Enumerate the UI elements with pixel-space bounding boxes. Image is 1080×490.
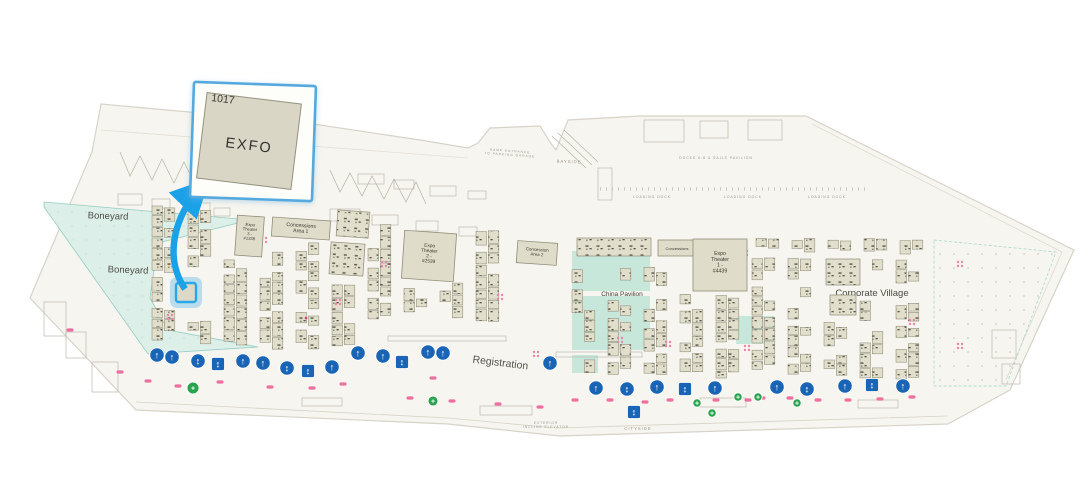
- concession-area-2-block[interactable]: ConcessionArea 2: [516, 241, 557, 266]
- booth: [896, 349, 907, 362]
- booth: [908, 272, 919, 281]
- booth: [716, 296, 727, 310]
- booth: [764, 318, 775, 328]
- cityside-label: CITYSIDE: [624, 426, 651, 431]
- escalator-up-icon-glyph: ↑: [170, 352, 175, 363]
- exhibit-marker: [495, 402, 502, 405]
- exhibit-marker: [309, 386, 316, 389]
- poster-marker: [665, 345, 667, 347]
- escalator-up-icon-glyph: ↑: [594, 383, 599, 394]
- booth: [836, 327, 847, 338]
- booth: [380, 249, 391, 261]
- exhibit-marker: [845, 398, 852, 401]
- booth: [656, 354, 667, 363]
- booth: [792, 241, 803, 249]
- booth: [380, 225, 391, 236]
- elevator-icon: ↕: [628, 406, 641, 419]
- elevator-icon: ↕: [212, 358, 225, 371]
- booth: [872, 332, 883, 344]
- escalator-up-icon-glyph: ↑: [155, 350, 160, 361]
- exhibit-marker: [117, 370, 124, 373]
- booth: [260, 330, 271, 342]
- booth: [692, 310, 703, 323]
- booth: [908, 344, 919, 352]
- booth: [152, 308, 163, 318]
- booth-callout[interactable]: 1017 EXFO: [190, 82, 316, 201]
- poster-marker: [381, 265, 383, 267]
- poster-marker: [385, 261, 387, 263]
- exhibit-marker: [787, 396, 794, 399]
- booth: [864, 239, 875, 252]
- booth: [728, 350, 739, 359]
- booth: [260, 288, 271, 301]
- booth: [728, 359, 739, 372]
- escalator-up-icon-glyph: ↑: [381, 351, 386, 362]
- loading-dock-label-3: LOADING DOCK: [808, 195, 846, 199]
- escalator-up-icon-glyph: ↑: [548, 358, 553, 369]
- booth: [752, 316, 763, 328]
- booth: [344, 297, 355, 308]
- elevator-icon: ↕: [866, 379, 879, 392]
- poster-marker: [961, 343, 963, 345]
- booth: [620, 357, 631, 368]
- accessibility-icon: +: [708, 409, 716, 418]
- escalator-up-icon: ↑: [256, 356, 270, 370]
- accessibility-icon-glyph: +: [431, 399, 435, 406]
- expo-theater-1-block[interactable]: ExpoTheater1 -#4439: [693, 239, 747, 291]
- booth: [308, 271, 319, 280]
- booth: [272, 282, 283, 292]
- booth: [308, 316, 319, 325]
- booth: [572, 302, 583, 313]
- booth: [224, 285, 235, 293]
- booth: [416, 299, 427, 307]
- booth: [756, 238, 767, 246]
- booth: [152, 319, 163, 327]
- escalator-up-icon: ↑: [770, 380, 784, 394]
- booth: [860, 369, 871, 378]
- booth: [826, 259, 860, 285]
- booth: [764, 355, 775, 365]
- booth: [824, 360, 835, 369]
- booth: [260, 301, 271, 310]
- concessions-block[interactable]: Concessions: [658, 240, 696, 256]
- elevator-icon-glyph: ↕: [870, 380, 875, 391]
- booth: [188, 322, 199, 330]
- booth: [728, 298, 739, 308]
- booth: [476, 309, 487, 321]
- booth: [380, 237, 391, 249]
- booth: [728, 331, 739, 340]
- booth: [656, 273, 667, 286]
- concessions-area-1-block[interactable]: ConcessionsArea 1: [271, 217, 330, 240]
- booth: [488, 231, 499, 244]
- booth: [908, 366, 919, 377]
- booth: [680, 311, 691, 323]
- expo-theater-3-block[interactable]: ExpoTheater3 -#1339: [235, 215, 265, 257]
- concessions-label: Concessions: [666, 246, 689, 251]
- poster-marker: [913, 319, 915, 321]
- booth: [620, 344, 631, 356]
- booth: [788, 259, 799, 269]
- booth: [752, 287, 763, 296]
- booth: [476, 265, 487, 276]
- booth: [404, 288, 415, 300]
- booth: [152, 215, 163, 226]
- poster-marker: [913, 323, 915, 325]
- floorplan-map[interactable]: ↑↑↕↕↑↑↕↕↑↑↑↕↑↑↑↑↕↑↕↑↑↕↑↕↑↕+++++++ Boneya…: [0, 0, 1080, 490]
- accessibility-icon-glyph: +: [756, 395, 760, 402]
- booth: [236, 269, 247, 282]
- booth: [488, 300, 499, 308]
- escalator-up-icon: ↑: [543, 356, 557, 370]
- booth: [584, 311, 595, 320]
- poster-marker: [497, 298, 499, 300]
- exhibit-marker: [667, 398, 674, 401]
- poster-marker: [265, 237, 267, 239]
- booth: [620, 269, 631, 281]
- booth: [260, 318, 271, 329]
- accessibility-icon: +: [754, 393, 762, 402]
- accessibility-icon-glyph: +: [795, 401, 799, 408]
- booth: [272, 273, 283, 281]
- booth: [368, 268, 379, 279]
- poster-marker: [501, 298, 503, 300]
- booth: [752, 270, 763, 280]
- poster-marker: [957, 261, 959, 263]
- china-pavilion-label: China Pavilion: [601, 291, 643, 298]
- booth: [308, 262, 319, 270]
- booth: [752, 350, 763, 360]
- poster-marker: [497, 294, 499, 296]
- escalator-up-icon-glyph: ↑: [330, 362, 335, 373]
- escalator-up-icon-glyph: ↑: [241, 356, 246, 367]
- booth: [200, 245, 211, 257]
- booth: [584, 360, 595, 373]
- escalator-down-icon-glyph: ↕: [805, 384, 810, 395]
- booth: [200, 321, 211, 333]
- poster-marker: [957, 265, 959, 267]
- booth: [608, 343, 619, 356]
- exhibit-marker: [877, 397, 884, 400]
- exhibit-marker: [909, 395, 916, 398]
- booth: [224, 306, 235, 316]
- booth: [644, 363, 655, 373]
- booth: [788, 270, 799, 279]
- booth: [692, 336, 703, 346]
- escalator-up-icon-glyph: ↑: [261, 358, 266, 369]
- exhibit-marker: [145, 379, 152, 382]
- escalator-down-icon: ↕: [800, 382, 814, 396]
- booth: [200, 230, 211, 244]
- poster-marker: [167, 318, 169, 320]
- exhibit-marker: [572, 398, 579, 401]
- poster-marker: [748, 349, 750, 351]
- booth: [860, 343, 871, 353]
- escalator-down-icon: ↕: [280, 361, 294, 375]
- booth: [476, 300, 487, 308]
- poster-marker: [744, 345, 746, 347]
- booth: [896, 306, 907, 320]
- elevator-icon: ↕: [302, 365, 315, 378]
- boneyard-lower-label: Boneyard: [108, 264, 149, 276]
- booth: [872, 345, 883, 354]
- booth: [380, 277, 391, 286]
- booth: [896, 270, 907, 284]
- escalator-up-icon-glyph: ↑: [901, 381, 906, 392]
- exhibit-marker: [175, 384, 182, 387]
- expo-floorplan-viewer: ↑↑↕↕↑↑↕↕↑↑↑↕↑↑↑↑↕↑↕↑↑↕↑↕↑↕+++++++ Boneya…: [0, 0, 1080, 490]
- escalator-up-icon: ↑: [589, 381, 603, 395]
- escalator-up-icon: ↑: [421, 345, 435, 359]
- booth: [200, 211, 211, 223]
- booth: [188, 211, 199, 224]
- booth: [912, 240, 923, 249]
- booth: [752, 259, 763, 269]
- booth: [860, 354, 871, 368]
- booth: [188, 256, 199, 267]
- point-marker: [305, 317, 308, 320]
- booth: [788, 336, 799, 346]
- poster-marker: [621, 337, 623, 339]
- booth: [896, 326, 907, 337]
- booth: [308, 288, 319, 299]
- booth: [872, 368, 883, 378]
- booth: [764, 258, 775, 270]
- booth: [692, 354, 703, 363]
- booth: [236, 332, 247, 345]
- accessibility-icon: +: [187, 382, 199, 394]
- escalator-down-icon-glyph: ↕: [196, 356, 201, 367]
- elevator-icon-glyph: ↕: [216, 359, 221, 370]
- booth: [824, 322, 835, 334]
- poster-marker: [335, 303, 337, 305]
- booth: [272, 252, 283, 265]
- poster-marker: [381, 261, 383, 263]
- booth: [584, 333, 595, 342]
- booth: [800, 288, 811, 297]
- booth: [788, 326, 799, 334]
- poster-marker: [339, 299, 341, 301]
- booth: [224, 275, 235, 283]
- booth: [308, 300, 319, 309]
- escalator-up-icon: ↑: [436, 346, 450, 360]
- booth: [656, 300, 667, 311]
- escalator-up-icon-glyph: ↑: [426, 347, 431, 358]
- booth: [488, 254, 499, 263]
- building-outline: [30, 104, 1074, 436]
- booth: [236, 283, 247, 294]
- poster-marker: [335, 299, 337, 301]
- poster-marker: [339, 303, 341, 305]
- escalator-down-icon: ↕: [191, 354, 205, 368]
- exhibit-marker: [713, 398, 720, 401]
- exhibit-marker: [607, 398, 614, 401]
- poster-marker: [617, 337, 619, 339]
- poster-marker: [171, 318, 173, 320]
- poster-marker: [665, 341, 667, 343]
- booth: [656, 364, 667, 374]
- booth: [608, 332, 619, 342]
- loading-dock-label-1: LOADING DOCK: [633, 195, 671, 199]
- booth: [188, 238, 199, 249]
- booth: [680, 343, 691, 352]
- booth: [764, 329, 775, 341]
- booth: [680, 359, 691, 372]
- booth: [380, 303, 391, 315]
- loading-dock-label-2: LOADING DOCK: [724, 195, 762, 199]
- booth: [476, 232, 487, 246]
- bayside-label: BAYSIDE: [557, 159, 582, 165]
- booth: [152, 228, 163, 237]
- escalator-up-icon-glyph: ↑: [356, 348, 361, 359]
- booth: [800, 363, 811, 371]
- booth: [836, 365, 847, 376]
- booth: [488, 287, 499, 299]
- booth: [824, 336, 835, 346]
- poster-marker: [501, 294, 503, 296]
- poster-marker: [537, 351, 539, 353]
- booth: [896, 260, 907, 268]
- escalator-up-icon-glyph: ↑: [713, 383, 718, 394]
- highlighted-booth[interactable]: [173, 280, 199, 305]
- booth: [488, 274, 499, 286]
- booth: [296, 330, 307, 342]
- booth: [716, 359, 727, 370]
- poster-marker: [909, 319, 911, 321]
- escalator-up-icon: ↑: [150, 348, 164, 362]
- booth: [344, 285, 355, 295]
- escalator-up-icon-glyph: ↑: [775, 382, 780, 393]
- booth: [476, 252, 487, 264]
- escalator-up-icon: ↑: [236, 354, 250, 368]
- booth: [296, 251, 307, 260]
- booth: [908, 303, 919, 311]
- booth: [332, 285, 343, 298]
- booth: [440, 291, 451, 302]
- booth: [768, 239, 779, 248]
- booth: [272, 337, 283, 349]
- booth: [840, 241, 851, 250]
- escalator-down-icon-glyph: ↕: [285, 363, 290, 374]
- booth: [368, 280, 379, 291]
- booth: [692, 364, 703, 372]
- elevator-icon: ↕: [396, 356, 409, 369]
- booth: [860, 312, 871, 321]
- booth: [908, 353, 919, 366]
- booth: [764, 341, 775, 354]
- exhibit-marker: [217, 380, 224, 383]
- booth: [344, 324, 355, 335]
- escalator-up-icon: ↑: [165, 350, 179, 364]
- booth: [800, 354, 811, 362]
- exhibit-marker: [430, 376, 437, 379]
- booth: [804, 238, 815, 252]
- poster-marker: [669, 345, 671, 347]
- booth: [572, 290, 583, 301]
- poster-marker: [961, 261, 963, 263]
- booth: [308, 243, 319, 255]
- booth: [368, 311, 379, 319]
- poster-marker: [385, 265, 387, 267]
- escalator-up-icon: ↑: [838, 379, 852, 393]
- booth: [656, 334, 667, 347]
- booth: [272, 294, 283, 305]
- booth: [224, 317, 235, 330]
- booth: [692, 324, 703, 335]
- poster-marker: [533, 355, 535, 357]
- exhibit-marker: [267, 385, 274, 388]
- booth: [152, 261, 163, 271]
- poster-marker: [617, 341, 619, 343]
- exhibit-marker: [642, 400, 649, 403]
- booth: [152, 277, 163, 291]
- escalator-down-icon: ↕: [620, 382, 634, 396]
- booth: [476, 277, 487, 289]
- booth: [716, 371, 727, 378]
- booth: [296, 262, 307, 270]
- booth: [488, 245, 499, 253]
- poster-marker: [167, 314, 169, 316]
- booth: [224, 331, 235, 341]
- booth: [488, 310, 499, 322]
- booth: [236, 295, 247, 306]
- booth: [577, 238, 651, 256]
- booth: [752, 297, 763, 305]
- booth: [788, 309, 799, 320]
- booth: [152, 238, 163, 247]
- booth: [308, 336, 319, 349]
- poster-marker: [744, 349, 746, 351]
- exhibit-marker: [815, 398, 822, 401]
- booth: [260, 278, 271, 286]
- escalator-up-icon: ↑: [325, 360, 339, 374]
- booth: [332, 312, 343, 324]
- booth: [896, 370, 907, 380]
- expo-theater-2-block[interactable]: ExpoTheater2 -#2539: [401, 230, 456, 282]
- booth: [876, 239, 887, 250]
- booth: [164, 320, 175, 331]
- booth: [680, 294, 691, 304]
- booth: [752, 361, 763, 369]
- elevator-icon: ↕: [679, 383, 692, 396]
- accessibility-icon-glyph: +: [191, 386, 195, 393]
- booth: [404, 302, 415, 312]
- booth: [336, 210, 370, 238]
- booth: [380, 287, 391, 296]
- booth: [332, 325, 343, 335]
- booth: [152, 249, 163, 260]
- booth: [272, 324, 283, 337]
- booth: [716, 322, 727, 332]
- booth: [152, 292, 163, 301]
- poster-marker: [621, 341, 623, 343]
- booth: [620, 323, 631, 331]
- booth: [272, 312, 283, 323]
- booth: [608, 301, 619, 312]
- booth: [452, 295, 463, 305]
- booth: [716, 334, 727, 342]
- elevator-icon-glyph: ↕: [400, 357, 405, 368]
- booth: [716, 349, 727, 357]
- poster-marker: [171, 314, 173, 316]
- escalator-up-icon: ↑: [650, 380, 664, 394]
- booth: [236, 307, 247, 318]
- booth: [188, 225, 199, 236]
- booth: [644, 340, 655, 352]
- booth: [828, 240, 839, 248]
- exhibit-marker: [449, 399, 456, 402]
